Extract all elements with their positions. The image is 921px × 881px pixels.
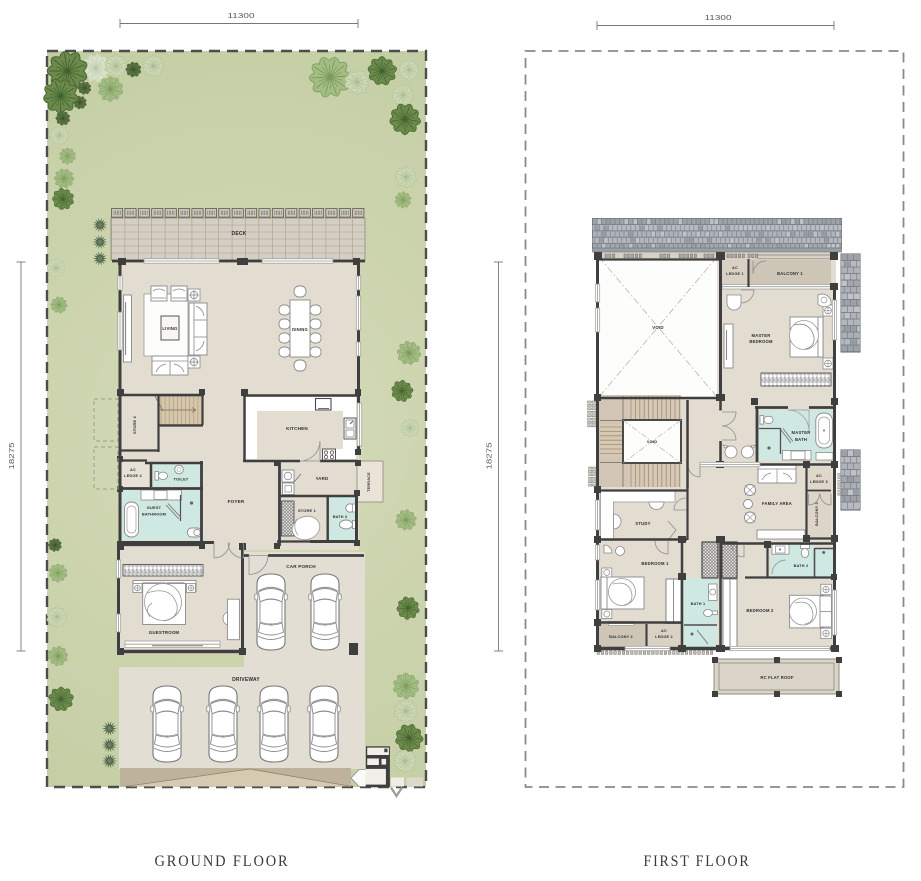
svg-text:DECK: DECK [232,231,247,237]
svg-text:VOID: VOID [647,439,658,444]
svg-text:FAMILY AREA: FAMILY AREA [762,501,792,506]
svg-text:MASTER: MASTER [752,333,771,338]
svg-text:LEDGE 2: LEDGE 2 [655,635,673,639]
svg-text:FOYER: FOYER [228,499,245,504]
svg-text:STUDY: STUDY [635,521,650,526]
svg-text:BALCONY 3: BALCONY 3 [815,502,819,526]
svg-text:AC: AC [732,266,738,270]
svg-text:GROUND FLOOR: GROUND FLOOR [155,853,290,870]
svg-text:BATH 1: BATH 1 [691,602,706,606]
svg-text:TOILET: TOILET [174,477,189,482]
svg-text:LIVING: LIVING [162,326,177,331]
svg-text:CAR PORCH: CAR PORCH [286,564,316,569]
svg-text:11300: 11300 [228,13,255,20]
svg-text:DINING: DINING [292,327,308,332]
svg-text:STORE 1: STORE 1 [298,508,317,513]
svg-text:AC: AC [130,468,136,472]
svg-text:RC FLAT ROOF: RC FLAT ROOF [760,675,794,680]
svg-text:BEDROOM: BEDROOM [749,339,773,344]
svg-text:GUESTROOM: GUESTROOM [149,630,180,635]
svg-text:18275: 18275 [487,442,494,469]
svg-text:BATH: BATH [795,437,807,442]
svg-text:AC: AC [816,474,822,478]
svg-text:TERRACE: TERRACE [367,472,371,492]
svg-text:YARD: YARD [316,476,329,481]
svg-text:GUEST: GUEST [147,505,162,510]
svg-text:LEDGE 3: LEDGE 3 [810,480,828,484]
svg-text:LEDGE 4: LEDGE 4 [124,474,142,478]
svg-text:BATH 2: BATH 2 [794,564,809,568]
svg-text:FIRST FLOOR: FIRST FLOOR [644,853,751,870]
svg-text:AC: AC [661,629,667,633]
svg-text:LEDGE 1: LEDGE 1 [726,272,744,276]
svg-text:BATHROOM: BATHROOM [142,512,166,517]
svg-text:BATH 3: BATH 3 [333,515,347,519]
svg-text:BEDROOM 2: BEDROOM 2 [746,608,774,613]
svg-text:BALCONY 2: BALCONY 2 [609,635,633,639]
svg-text:MASTER: MASTER [792,430,811,435]
svg-text:STORE 2: STORE 2 [132,415,137,434]
svg-text:11300: 11300 [705,15,732,22]
svg-text:DRIVEWAY: DRIVEWAY [232,677,260,683]
svg-text:BEDROOM 1: BEDROOM 1 [641,561,669,566]
svg-text:BALCONY 1: BALCONY 1 [777,271,803,276]
svg-text:18275: 18275 [9,442,16,469]
svg-text:KITCHEN: KITCHEN [286,426,308,431]
svg-text:VOID: VOID [652,325,664,330]
